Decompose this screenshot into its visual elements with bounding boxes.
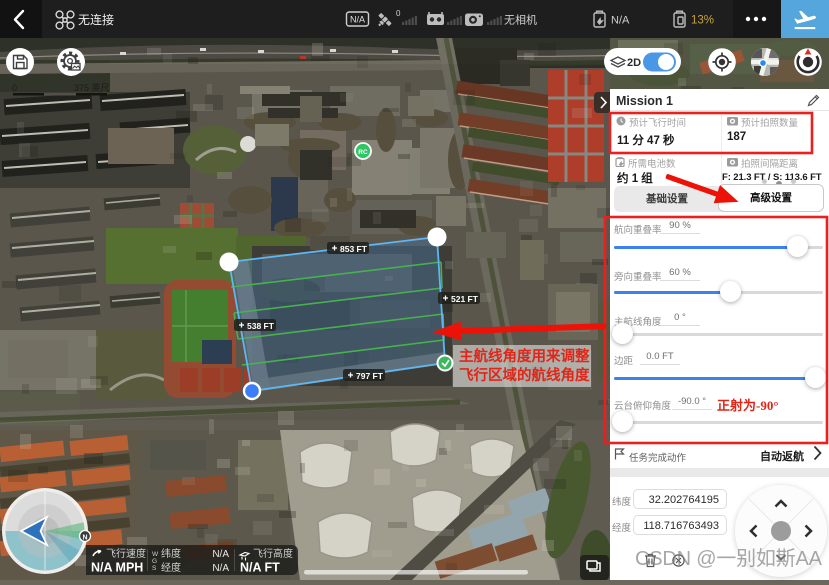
svg-text:主航线角度用来调整: 主航线角度用来调整 [459,347,590,365]
svg-text:飞行区域的航线角度: 飞行区域的航线角度 [459,366,590,384]
svg-text:CSDN @一别如斯AA: CSDN @一别如斯AA [635,547,823,570]
